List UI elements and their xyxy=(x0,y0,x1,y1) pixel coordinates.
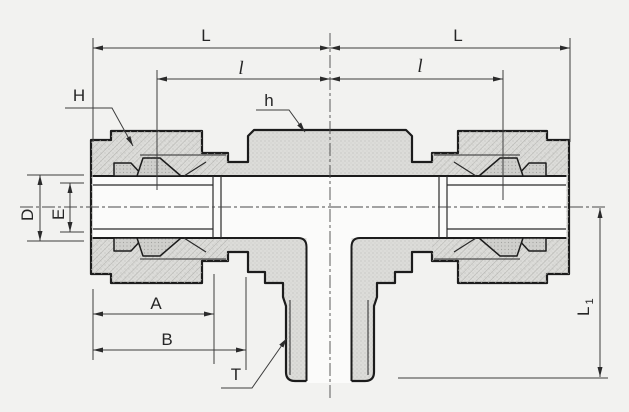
svg-text:L: L xyxy=(574,307,593,316)
label-D: D xyxy=(18,209,37,221)
label-l-right: l xyxy=(417,56,422,77)
label-E: E xyxy=(49,209,68,220)
label-T: T xyxy=(231,365,241,384)
label-L-left: L xyxy=(201,26,210,45)
svg-text:1: 1 xyxy=(584,298,596,304)
label-L-right: L xyxy=(453,26,462,45)
label-H: H xyxy=(73,86,85,105)
svg-text:D: D xyxy=(18,209,37,221)
label-A: A xyxy=(150,294,162,313)
label-B: B xyxy=(161,330,172,349)
fitting-drawing-svg: L L l l H h A B T D E L 1 xyxy=(0,0,629,412)
svg-text:E: E xyxy=(49,209,68,220)
branch-bore xyxy=(307,237,352,383)
technical-drawing: L L l l H h A B T D E L 1 xyxy=(0,0,629,412)
label-h: h xyxy=(264,91,273,110)
label-l-left: l xyxy=(238,58,243,79)
